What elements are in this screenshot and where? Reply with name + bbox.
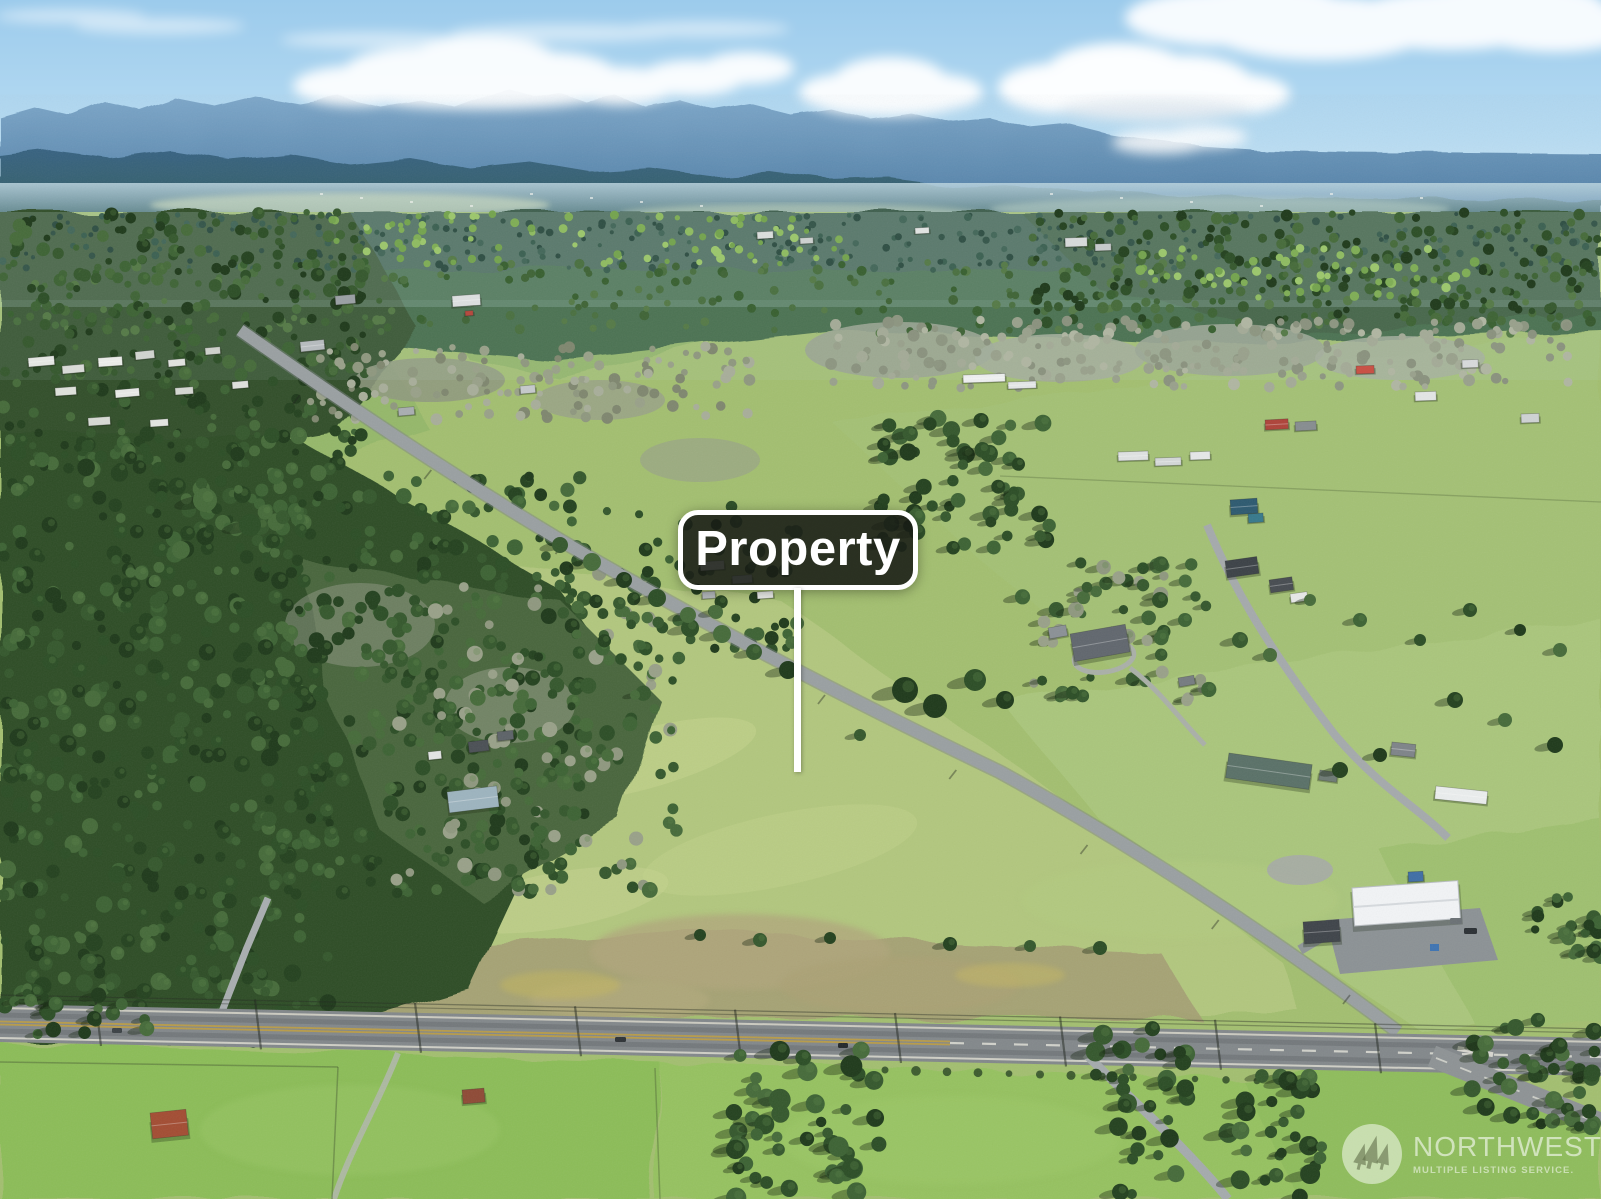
property-sign: Property [678,510,918,590]
property-sign-label: Property [695,525,901,574]
property-pointer-line [794,588,801,772]
